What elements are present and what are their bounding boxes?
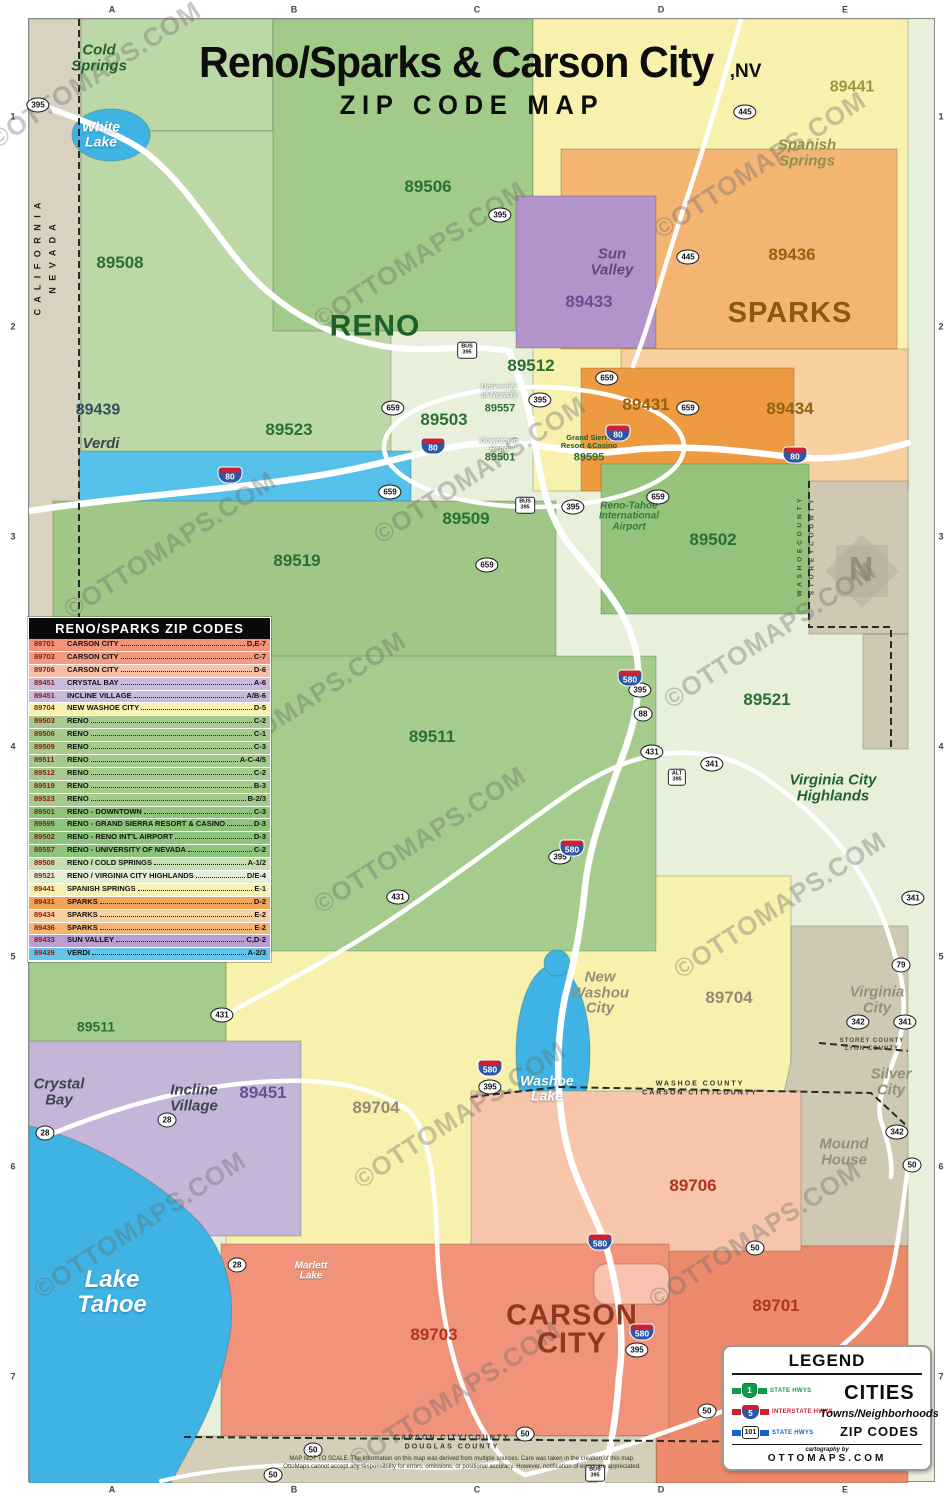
highway-line-icon bbox=[732, 1430, 741, 1436]
zip-table-row: 89523 RENO B-2/3 bbox=[29, 794, 270, 807]
zip-code: 89704 bbox=[34, 703, 67, 712]
leader-dots bbox=[91, 735, 252, 736]
zip-table-row: 89511 RENO A-C-4/5 bbox=[29, 755, 270, 768]
zip-area-name: RENO - RENO INT'L AIRPORT bbox=[67, 832, 173, 841]
leader-dots bbox=[116, 941, 244, 942]
zip-code: 89703 bbox=[34, 652, 67, 661]
zip-table-row: 89557 RENO - UNIVERSITY OF NEVADA C-2 bbox=[29, 845, 270, 858]
grid-label: 5 bbox=[938, 952, 943, 961]
leader-dots bbox=[121, 658, 252, 659]
zip-code: 89506 bbox=[34, 729, 67, 738]
zip-table-row: 89501 RENO - DOWNTOWN C-3 bbox=[29, 807, 270, 820]
grid-label: 6 bbox=[938, 1162, 943, 1171]
highway-shield-icon: 101 bbox=[742, 1426, 759, 1439]
leader-dots bbox=[121, 645, 245, 646]
legend-item-label: STATE HWYS bbox=[772, 1430, 813, 1436]
zip-grid-ref: B-2/3 bbox=[248, 794, 266, 803]
zip-table-row: 89519 RENO B-3 bbox=[29, 781, 270, 794]
zip-code: 89521 bbox=[34, 871, 67, 880]
zip-code: 89451 bbox=[34, 691, 67, 700]
grid-label: 3 bbox=[10, 532, 15, 541]
map-page: ©OTTOMAPS.COM©OTTOMAPS.COM©OTTOMAPS.COM©… bbox=[0, 0, 950, 1498]
highway-line-icon bbox=[760, 1409, 769, 1415]
zip-grid-ref: A-C-4/5 bbox=[240, 755, 266, 764]
grid-label: 2 bbox=[938, 322, 943, 331]
zip-grid-ref: B-3 bbox=[254, 781, 266, 790]
zip-table-row: 89595 RENO - GRAND SIERRA RESORT & CASIN… bbox=[29, 819, 270, 832]
zip-grid-ref: A-2/3 bbox=[248, 948, 266, 957]
region-89511 bbox=[259, 656, 656, 951]
grid-label: 4 bbox=[10, 742, 15, 751]
zip-code: 89431 bbox=[34, 897, 67, 906]
grid-label: B bbox=[291, 1485, 298, 1494]
zip-area-name: RENO / COLD SPRINGS bbox=[67, 858, 152, 867]
zip-grid-ref: D/E-4 bbox=[247, 871, 266, 880]
zip-code: 89519 bbox=[34, 781, 67, 790]
zip-area-name: SUN VALLEY bbox=[67, 935, 114, 944]
legend-zipcodes-label: ZIP CODES bbox=[820, 1424, 939, 1439]
leader-dots bbox=[121, 684, 252, 685]
zip-area-name: RENO - GRAND SIERRA RESORT & CASINO bbox=[67, 819, 225, 828]
grid-label: 3 bbox=[938, 532, 943, 541]
zip-grid-ref: D-5 bbox=[254, 703, 266, 712]
zip-grid-ref: D-3 bbox=[254, 832, 266, 841]
zip-code: 89451 bbox=[34, 678, 67, 687]
grid-label: C bbox=[474, 1485, 481, 1494]
grid-label: 7 bbox=[10, 1372, 15, 1381]
legend-box: LEGEND 1 STATE HWYS 5 INTERSTATE HWYS bbox=[722, 1345, 932, 1471]
zip-area-name: INCLINE VILLAGE bbox=[67, 691, 132, 700]
zip-grid-ref: C-7 bbox=[254, 652, 266, 661]
leader-dots bbox=[100, 916, 253, 917]
grid-label: 2 bbox=[10, 322, 15, 331]
legend-item: 5 INTERSTATE HWYS bbox=[732, 1405, 820, 1419]
zip-area-name: RENO bbox=[67, 794, 89, 803]
zip-table-row: 89503 RENO C-2 bbox=[29, 716, 270, 729]
leader-dots bbox=[100, 903, 252, 904]
grid-label: 7 bbox=[938, 1372, 943, 1381]
region-89502 bbox=[601, 464, 809, 614]
leader-dots bbox=[91, 800, 246, 801]
zip-grid-ref: C,D-2 bbox=[246, 935, 266, 944]
zip-area-name: NEW WASHOE CITY bbox=[67, 703, 139, 712]
zip-area-name: CARSON CITY bbox=[67, 652, 119, 661]
zip-code: 89433 bbox=[34, 935, 67, 944]
leader-dots bbox=[91, 774, 252, 775]
zip-area-name: RENO bbox=[67, 768, 89, 777]
leader-dots bbox=[154, 864, 246, 865]
zip-table-row: 89431 SPARKS D-2 bbox=[29, 897, 270, 910]
zip-code: 89557 bbox=[34, 845, 67, 854]
zip-code: 89501 bbox=[34, 807, 67, 816]
legend-item: 101 STATE HWYS bbox=[732, 1426, 820, 1439]
zip-grid-ref: A-1/2 bbox=[248, 858, 266, 867]
map-title: Reno/Sparks & Carson City,NV ZIP CODE MA… bbox=[183, 38, 762, 121]
leader-dots bbox=[91, 761, 238, 762]
zip-code: 89434 bbox=[34, 910, 67, 919]
leader-dots bbox=[92, 954, 246, 955]
legend-item: 1 STATE HWYS bbox=[732, 1383, 820, 1398]
zip-area-name: SPARKS bbox=[67, 897, 98, 906]
leader-dots bbox=[91, 722, 252, 723]
zip-table-row: 89706 CARSON CITY D-6 bbox=[29, 665, 270, 678]
title-subtitle: ZIP CODE MAP bbox=[197, 90, 747, 121]
zip-table-header: RENO/SPARKS ZIP CODES bbox=[29, 618, 270, 639]
zip-grid-ref: C-2 bbox=[254, 716, 266, 725]
legend-shield-list: 1 STATE HWYS 5 INTERSTATE HWYS 101 STATE… bbox=[732, 1380, 820, 1439]
zip-table-row: 89508 RENO / COLD SPRINGS A-1/2 bbox=[29, 858, 270, 871]
leader-dots bbox=[91, 787, 252, 788]
zip-area-name: RENO - DOWNTOWN bbox=[67, 807, 142, 816]
zip-grid-ref: A-6 bbox=[254, 678, 266, 687]
region-89706 bbox=[471, 1091, 801, 1251]
zip-grid-ref: E-2 bbox=[254, 923, 266, 932]
legend-title: LEGEND bbox=[732, 1351, 922, 1371]
zip-table-row: 89451 CRYSTAL BAY A-6 bbox=[29, 678, 270, 691]
leader-dots bbox=[134, 697, 245, 698]
highway-shield-icon: 1 bbox=[742, 1383, 757, 1398]
highway-line-icon bbox=[732, 1409, 741, 1415]
leader-dots bbox=[100, 929, 253, 930]
zip-grid-ref: C-2 bbox=[254, 845, 266, 854]
zip-area-name: SPARKS bbox=[67, 923, 98, 932]
highway-shield-icon: 5 bbox=[742, 1405, 759, 1419]
region-89433 bbox=[516, 196, 656, 348]
zip-area-name: CRYSTAL BAY bbox=[67, 678, 119, 687]
zip-grid-ref: E-2 bbox=[254, 910, 266, 919]
grid-label: A bbox=[109, 5, 116, 14]
highway-line-icon bbox=[758, 1388, 767, 1394]
zip-area-name: RENO bbox=[67, 716, 89, 725]
legend-credit: cartography by OTTOMAPS.COM bbox=[732, 1444, 922, 1464]
grid-label: D bbox=[658, 1485, 665, 1494]
grid-label: A bbox=[109, 1485, 116, 1494]
zip-code: 89439 bbox=[34, 948, 67, 957]
zip-table-row: 89506 RENO C-1 bbox=[29, 729, 270, 742]
leader-dots bbox=[227, 825, 252, 826]
zip-area-name: SPARKS bbox=[67, 910, 98, 919]
divider bbox=[732, 1373, 922, 1375]
grid-label: E bbox=[842, 1485, 848, 1494]
leader-dots bbox=[175, 838, 252, 839]
zip-area-name: SPANISH SPRINGS bbox=[67, 884, 136, 893]
zip-code: 89512 bbox=[34, 768, 67, 777]
zip-code: 89523 bbox=[34, 794, 67, 803]
zip-area-name: RENO bbox=[67, 755, 89, 764]
leader-dots bbox=[196, 877, 245, 878]
zip-table-row: 89509 RENO C-3 bbox=[29, 742, 270, 755]
grid-label: E bbox=[842, 5, 848, 14]
zip-table-row: 89502 RENO - RENO INT'L AIRPORT D-3 bbox=[29, 832, 270, 845]
zip-grid-ref: E-1 bbox=[254, 884, 266, 893]
legend-towns-label: Towns/Neighborhoods bbox=[820, 1408, 939, 1420]
zip-grid-ref: A/B-6 bbox=[246, 691, 266, 700]
zip-table-row: 89441 SPANISH SPRINGS E-1 bbox=[29, 884, 270, 897]
zip-area-name: RENO - UNIVERSITY OF NEVADA bbox=[67, 845, 186, 854]
zip-table-rows: 89701 CARSON CITY D,E-7 89703 CARSON CIT… bbox=[29, 639, 270, 961]
grid-label: 5 bbox=[10, 952, 15, 961]
legend-cities-label: CITIES bbox=[820, 1382, 939, 1405]
grid-label: 1 bbox=[938, 112, 943, 121]
zip-table-row: 89512 RENO C-2 bbox=[29, 768, 270, 781]
zip-code: 89509 bbox=[34, 742, 67, 751]
zip-code: 89441 bbox=[34, 884, 67, 893]
zip-code: 89502 bbox=[34, 832, 67, 841]
leader-dots bbox=[138, 890, 253, 891]
zip-grid-ref: D-3 bbox=[254, 819, 266, 828]
zip-area-name: RENO / VIRGINIA CITY HIGHLANDS bbox=[67, 871, 194, 880]
title-main: Reno/Sparks & Carson City bbox=[199, 38, 713, 88]
leader-dots bbox=[188, 851, 252, 852]
zip-area-name: RENO bbox=[67, 781, 89, 790]
zip-table-row: 89704 NEW WASHOE CITY D-5 bbox=[29, 703, 270, 716]
zip-table-row: 89701 CARSON CITY D,E-7 bbox=[29, 639, 270, 652]
zip-area-name: RENO bbox=[67, 742, 89, 751]
zip-area-name: VERDI bbox=[67, 948, 90, 957]
grid-label: 6 bbox=[10, 1162, 15, 1171]
leader-dots bbox=[141, 709, 252, 710]
zip-code: 89508 bbox=[34, 858, 67, 867]
zip-code: 89436 bbox=[34, 923, 67, 932]
leader-dots bbox=[91, 748, 252, 749]
grid-label: C bbox=[474, 5, 481, 14]
zip-grid-ref: C-3 bbox=[254, 807, 266, 816]
zip-area-name: RENO bbox=[67, 729, 89, 738]
title-suffix: ,NV bbox=[730, 61, 762, 82]
zip-code: 89595 bbox=[34, 819, 67, 828]
zip-table-row: 89521 RENO / VIRGINIA CITY HIGHLANDS D/E… bbox=[29, 871, 270, 884]
zip-area-name: CARSON CITY bbox=[67, 639, 119, 648]
zip-table-row: 89436 SPARKS E-2 bbox=[29, 923, 270, 936]
zip-area-name: CARSON CITY bbox=[67, 665, 119, 674]
grid-label: 4 bbox=[938, 742, 943, 751]
grid-label: B bbox=[291, 5, 298, 14]
zip-grid-ref: C-3 bbox=[254, 742, 266, 751]
zip-grid-ref: D-6 bbox=[254, 665, 266, 674]
zip-table-row: 89439 VERDI A-2/3 bbox=[29, 948, 270, 961]
zip-code: 89701 bbox=[34, 639, 67, 648]
leader-dots bbox=[144, 813, 252, 814]
zip-table-row: 89433 SUN VALLEY C,D-2 bbox=[29, 935, 270, 948]
zip-table-row: 89703 CARSON CITY C-7 bbox=[29, 652, 270, 665]
zip-code: 89511 bbox=[34, 755, 67, 764]
zip-code: 89503 bbox=[34, 716, 67, 725]
compass-icon bbox=[825, 534, 899, 608]
zip-grid-ref: D-2 bbox=[254, 897, 266, 906]
highway-line-icon bbox=[732, 1388, 741, 1394]
zip-grid-ref: D,E-7 bbox=[247, 639, 266, 648]
grid-label: D bbox=[658, 5, 665, 14]
leader-dots bbox=[121, 671, 252, 672]
zip-grid-ref: C-2 bbox=[254, 768, 266, 777]
highway-line-icon bbox=[760, 1430, 769, 1436]
legend-item-label: STATE HWYS bbox=[770, 1388, 811, 1394]
zip-grid-ref: C-1 bbox=[254, 729, 266, 738]
zip-code-table: RENO/SPARKS ZIP CODES 89701 CARSON CITY … bbox=[28, 617, 271, 962]
zip-code: 89706 bbox=[34, 665, 67, 674]
zip-table-row: 89451 INCLINE VILLAGE A/B-6 bbox=[29, 691, 270, 704]
zip-table-row: 89434 SPARKS E-2 bbox=[29, 910, 270, 923]
grid-label: 1 bbox=[10, 112, 15, 121]
credit-name: OTTOMAPS.COM bbox=[732, 1453, 922, 1464]
